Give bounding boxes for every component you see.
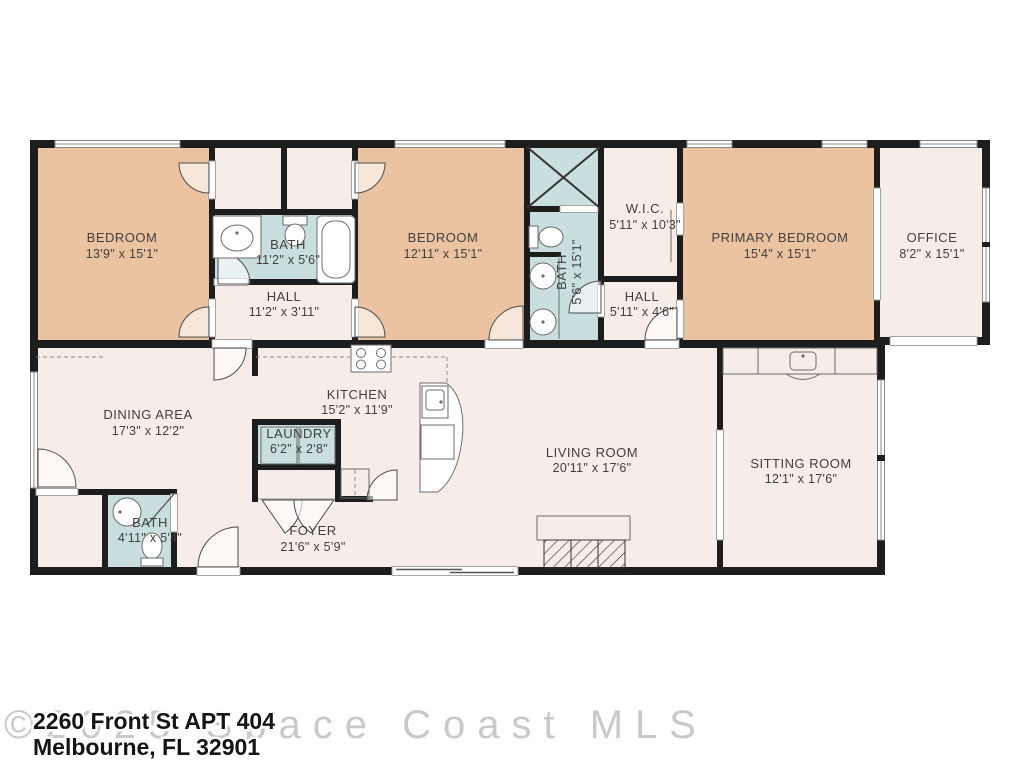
room-name: LIVING ROOM [546,445,638,460]
room-name: PRIMARY BEDROOM [711,230,848,245]
room-dims: 11'2" x 3'11" [249,305,320,319]
room-dims: 20'11" x 17'6" [553,461,632,475]
room-dims: 6'2" x 2'8" [270,442,328,456]
room-name: KITCHEN [327,387,388,402]
room-name: OFFICE [907,230,958,245]
room-dims: 8'2" x 15'1" [899,247,964,261]
footer-text: ©2025 Space Coast MLS 2260 Front St APT … [4,703,708,760]
address-line-2: Melbourne, FL 32901 [33,734,260,760]
room-dims: 15'2" x 11'9" [321,403,393,417]
room-name: BATH [270,237,306,252]
room-name: BATH [554,254,569,290]
room-name: SITTING ROOM [750,456,851,471]
room-name: HALL [267,289,302,304]
room-dims: 12'1" x 17'6" [765,472,837,486]
room-dims: 15'4" x 15'1" [744,247,816,261]
room-name: DINING AREA [103,407,192,422]
room-dims: 21'6" x 5'9" [280,540,345,554]
room-dims: 5'11" x 10'3" [609,218,681,232]
room-name: BEDROOM [87,230,158,245]
fireplace [537,516,630,568]
address-line-1: 2260 Front St APT 404 [33,708,275,734]
room-dims: 12'11" x 15'1" [404,247,483,261]
room-dims: 13'9" x 15'1" [86,247,158,261]
floor-plan-page: BEDROOM 13'9" x 15'1" BATH 11'2" x 5'6" … [0,0,1024,768]
room-name: HALL [625,289,660,304]
room-name: LAUNDRY [266,426,331,441]
room-dims: 17'3" x 12'2" [112,424,184,438]
room-dims: 5'11" x 4'6" [610,305,674,319]
room-name: FOYER [289,523,336,538]
stove [351,345,391,372]
sliding-door [392,567,518,576]
floor-plan: BEDROOM 13'9" x 15'1" BATH 11'2" x 5'6" … [0,0,1024,768]
room-dims: 5'6" x 15'1" [570,239,584,304]
room-name: BATH [132,515,168,530]
room-dims: 11'2" x 5'6" [256,253,320,267]
room-dims: 4'11" x 5'4" [118,531,182,545]
room-name: BEDROOM [408,230,479,245]
room-name: W.I.C. [626,201,664,216]
